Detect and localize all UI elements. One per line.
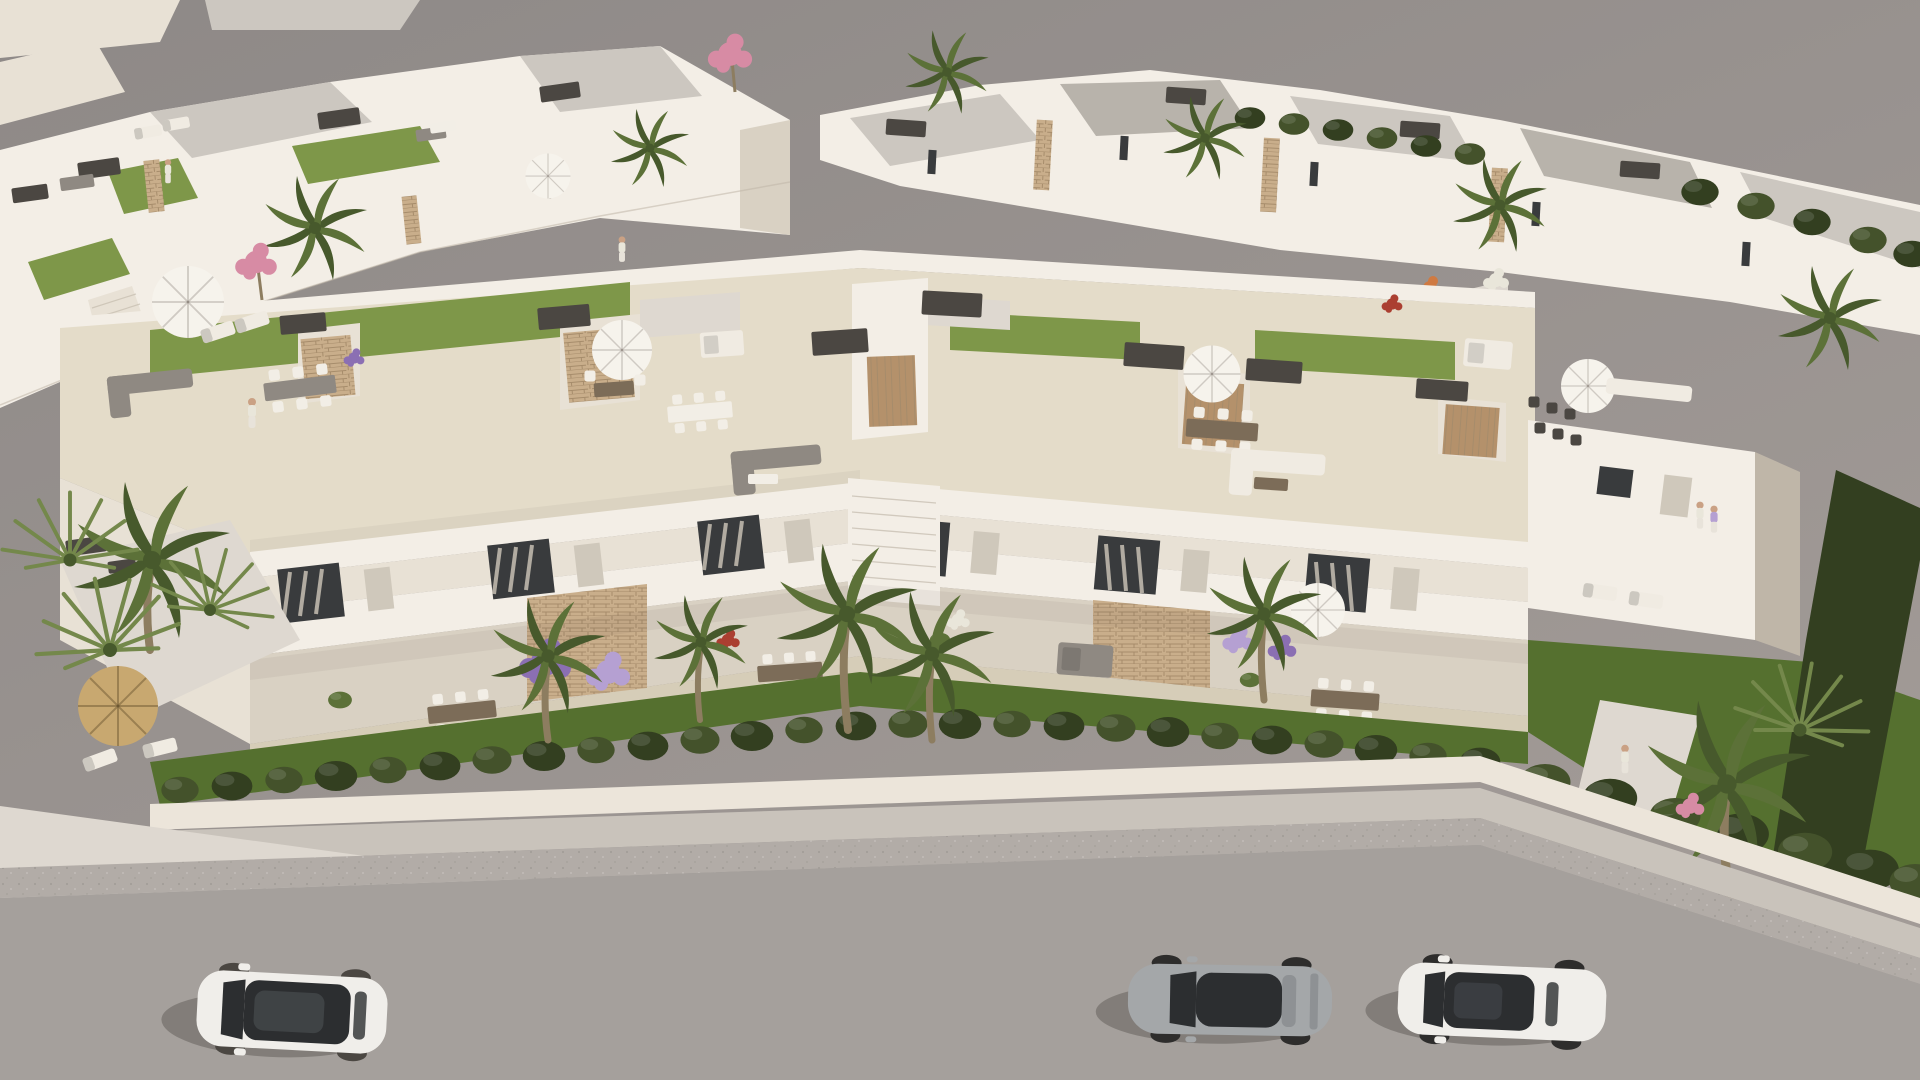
distant-roof <box>205 0 420 30</box>
windshield <box>221 978 246 1039</box>
pergola-box <box>1619 161 1660 180</box>
white-parasol <box>1184 346 1241 403</box>
side-mirror <box>1187 956 1198 962</box>
coffee-table <box>1254 477 1289 491</box>
sliding-door <box>277 563 345 624</box>
pergola-box <box>885 119 926 138</box>
rear-window <box>1545 982 1559 1026</box>
side-mirror <box>1434 1036 1446 1044</box>
person-back-terrace <box>619 236 626 262</box>
roof-reflection <box>253 990 325 1034</box>
pergola-box <box>1165 87 1206 106</box>
louver-shutter <box>970 531 1000 575</box>
roof-dining-set <box>262 362 339 413</box>
sliding-door <box>1094 535 1160 594</box>
coffee-table <box>748 474 778 484</box>
architectural-render-canvas <box>0 0 1920 1080</box>
window <box>1596 466 1633 498</box>
white-parasol <box>526 154 571 199</box>
cabin-glass <box>1196 972 1283 1027</box>
person-couple-a <box>1696 502 1703 529</box>
roof-dining-set <box>1185 406 1260 454</box>
roof-table <box>594 381 635 398</box>
rear-window <box>353 991 367 1040</box>
potted-plant <box>1240 673 1260 687</box>
rear-deck <box>1282 975 1297 1027</box>
windshield <box>1423 971 1445 1028</box>
louver-shutter <box>1180 549 1210 593</box>
white-parasol <box>592 320 652 380</box>
sliding-door <box>487 539 555 600</box>
side-mirror <box>1185 1036 1196 1042</box>
roof-reflection <box>1453 982 1503 1020</box>
sliding-door <box>697 515 765 576</box>
person-back-terrace-left <box>165 159 171 183</box>
side-mirror <box>1438 955 1450 963</box>
person-right-garden <box>1621 745 1629 774</box>
roof-dining-set <box>666 390 734 434</box>
potted-plant <box>328 692 352 709</box>
daybed <box>1056 642 1113 678</box>
louver-shutter <box>574 543 605 588</box>
daybed <box>700 330 745 358</box>
thatch-umbrella <box>78 666 158 746</box>
gravel-patch <box>640 292 740 338</box>
person-couple-b <box>1710 506 1717 533</box>
side-mirror <box>238 963 250 971</box>
louver-shutter <box>784 519 815 564</box>
person-left-roof <box>248 398 256 428</box>
side-mirror <box>234 1048 246 1056</box>
windshield <box>1170 971 1197 1027</box>
louver-shutter <box>1660 474 1693 517</box>
louver-shutter <box>1390 567 1420 611</box>
rear-wing <box>1309 973 1318 1029</box>
louver-shutter <box>364 567 395 612</box>
daybed <box>1463 338 1513 370</box>
shaded-face <box>740 120 790 235</box>
